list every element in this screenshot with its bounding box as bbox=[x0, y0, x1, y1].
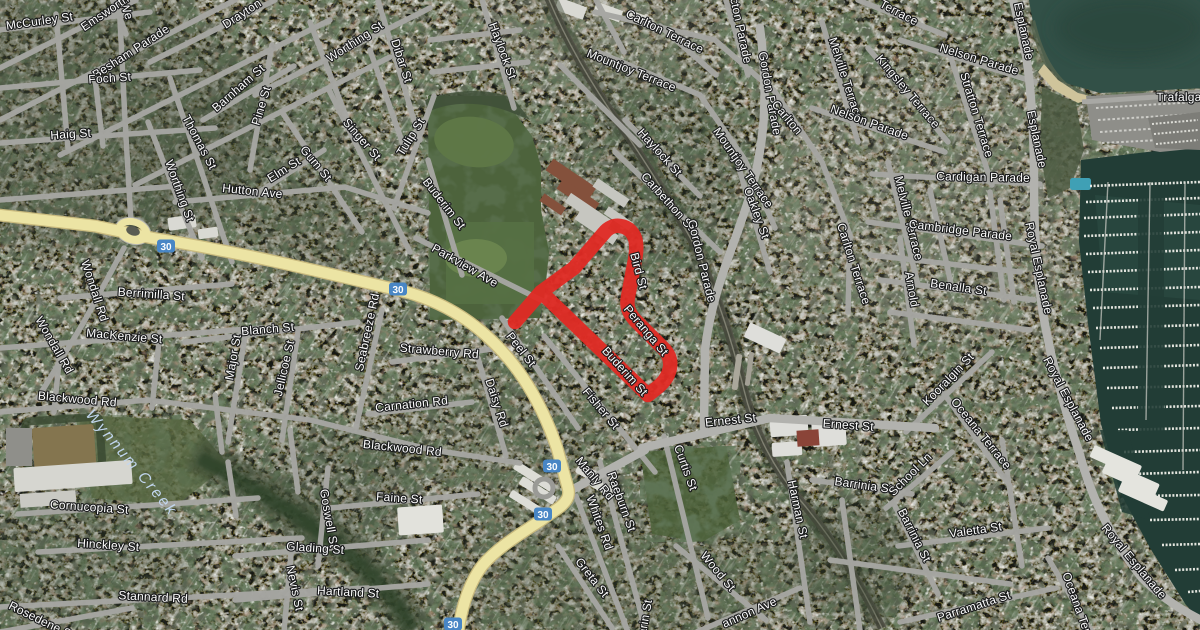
svg-text:30: 30 bbox=[546, 462, 558, 473]
svg-text:30: 30 bbox=[537, 510, 549, 521]
svg-text:30: 30 bbox=[392, 285, 404, 296]
svg-text:Haig St: Haig St bbox=[50, 126, 92, 143]
svg-text:Trafalgar: Trafalgar bbox=[1156, 90, 1200, 104]
svg-text:Cardigan Parade: Cardigan Parade bbox=[936, 169, 1030, 185]
svg-text:30: 30 bbox=[447, 620, 459, 630]
svg-text:30: 30 bbox=[160, 242, 172, 253]
